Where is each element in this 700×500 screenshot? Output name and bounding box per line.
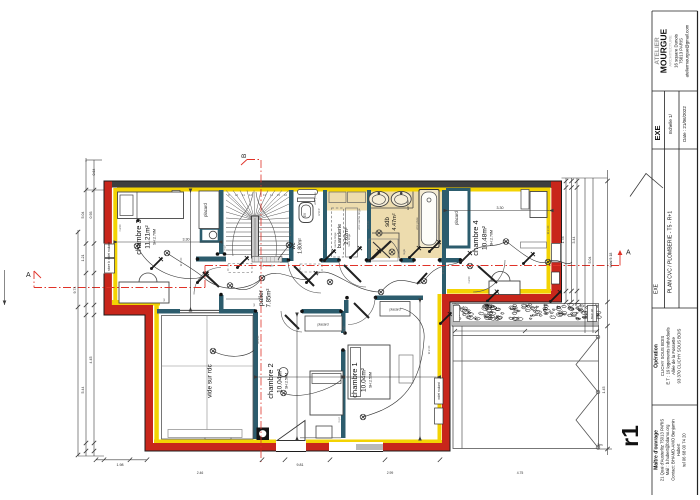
svg-text:sdb: sdb <box>385 217 391 227</box>
svg-text:1.45: 1.45 <box>602 387 606 394</box>
svg-text:0.93: 0.93 <box>89 212 93 219</box>
svg-text:1.80m²: 1.80m² <box>298 238 304 254</box>
svg-text:ateliermourgue@gmail.com: ateliermourgue@gmail.com <box>685 24 690 77</box>
svg-text:vide sur rdc: vide sur rdc <box>207 363 214 397</box>
svg-text:Echelle 1/: Echelle 1/ <box>668 113 673 134</box>
svg-text:fd:2.30: fd:2.30 <box>179 257 183 266</box>
svg-text:fd:2.30: fd:2.30 <box>427 345 431 354</box>
svg-text:fd:2.30: fd:2.30 <box>288 227 292 236</box>
svg-text:rec: rec <box>252 302 256 306</box>
svg-text:9.74: 9.74 <box>73 287 77 294</box>
svg-text:2.46: 2.46 <box>197 471 204 475</box>
svg-text:2.62m²: 2.62m² <box>344 227 350 244</box>
svg-text:1.21: 1.21 <box>81 255 85 262</box>
svg-text:HSFP: HSFP <box>317 208 321 216</box>
svg-text:1.98: 1.98 <box>117 463 124 467</box>
svg-text:rs pl: rs pl <box>337 417 341 423</box>
svg-text:rec240: rec240 <box>256 335 260 344</box>
svg-text:chambre 3: chambre 3 <box>134 219 143 254</box>
svg-text:10.04m²: 10.04m² <box>361 367 368 392</box>
svg-text:CLICHY SOUS BOIS: CLICHY SOUS BOIS <box>660 336 665 377</box>
svg-text:vmc pluie: vmc pluie <box>415 217 419 230</box>
svg-text:1.78: 1.78 <box>561 237 565 244</box>
svg-text:placard: placard <box>317 323 328 327</box>
svg-text:B: B <box>241 154 248 158</box>
svg-text:16: 16 <box>284 193 288 197</box>
svg-text:SH:2.50M: SH:2.50M <box>285 373 289 389</box>
svg-text:fd:2.30: fd:2.30 <box>546 225 550 234</box>
svg-text:10.48m²: 10.48m² <box>482 225 489 250</box>
svg-text:13: 13 <box>263 193 267 197</box>
svg-text:placard: placard <box>203 202 208 216</box>
svg-text:3.30: 3.30 <box>183 238 190 242</box>
svg-text:93 370 CLICHY SOUS BOIS: 93 370 CLICHY SOUS BOIS <box>677 328 682 383</box>
svg-text:4.75: 4.75 <box>517 471 524 475</box>
svg-text:5.04: 5.04 <box>588 257 592 264</box>
svg-text:11.21m²: 11.21m² <box>145 224 152 248</box>
svg-text:2.99: 2.99 <box>387 471 394 475</box>
svg-text:A: A <box>626 250 631 257</box>
svg-text:chambre 2: chambre 2 <box>266 363 275 398</box>
svg-text:placard: placard <box>389 308 400 312</box>
svg-text:total 9.18: total 9.18 <box>609 253 613 268</box>
svg-text:3.44: 3.44 <box>572 237 576 244</box>
svg-text:21 Quai d'Austerlitz 75013 PAR: 21 Quai d'Austerlitz 75013 PARIS <box>660 419 665 482</box>
svg-text:PLAN CVC / PLOMBERIE - T5 - R+: PLAN CVC / PLOMBERIE - T5 - R+1 <box>668 211 674 294</box>
svg-text:Contact: BHAMD-AMO Benjamin: Contact: BHAMD-AMO Benjamin <box>671 419 676 481</box>
svg-text:10: 10 <box>235 193 239 197</box>
svg-text:ARCHITECTURE: ARCHITECTURE <box>668 35 673 67</box>
svg-text:chambre 1: chambre 1 <box>350 362 359 397</box>
svg-text:12: 12 <box>249 193 253 197</box>
svg-text:fd2.30: fd2.30 <box>342 326 346 334</box>
svg-text:11: 11 <box>242 193 245 197</box>
svg-text:4.47m²: 4.47m² <box>392 213 398 230</box>
svg-text:vmc pluie: vmc pluie <box>313 192 317 205</box>
svg-text:Allée de la Fossette: Allée de la Fossette <box>671 337 676 375</box>
svg-text:rec: rec <box>162 297 166 301</box>
svg-text:BAC 40: BAC 40 <box>590 309 594 320</box>
svg-text:3.30: 3.30 <box>497 206 504 210</box>
svg-text:10.04m²: 10.04m² <box>277 368 284 393</box>
svg-text:r1: r1 <box>617 425 643 447</box>
svg-text:SH:2.70M: SH:2.70M <box>490 230 494 246</box>
svg-text:EC 75L: EC 75L <box>406 200 410 210</box>
svg-text:5.44: 5.44 <box>81 387 85 394</box>
svg-text:SH:2.70M: SH:2.70M <box>153 229 157 245</box>
svg-text:volet roulant: volet roulant <box>107 242 111 259</box>
svg-text:5.04: 5.04 <box>81 212 85 219</box>
svg-text:chambre 4: chambre 4 <box>471 220 480 255</box>
svg-text:4.45: 4.45 <box>89 357 93 364</box>
svg-text:vmc seche linge: vmc seche linge <box>357 208 361 230</box>
svg-text:buanderie: buanderie <box>337 224 343 248</box>
svg-text:volet roulant: volet roulant <box>437 382 441 399</box>
svg-text:fd:2.30: fd:2.30 <box>441 265 445 274</box>
svg-text:rs240: rs240 <box>118 224 122 231</box>
svg-text:Hubert: Hubert <box>676 443 681 456</box>
svg-text:15: 15 <box>277 193 281 197</box>
svg-text:5m: 5m <box>598 443 603 447</box>
svg-text:rs pl: rs pl <box>223 245 227 251</box>
svg-text:store b: store b <box>107 261 111 271</box>
svg-text:wc: wc <box>291 242 297 250</box>
svg-text:tel 06 68 00 74 20: tel 06 68 00 74 20 <box>682 433 687 467</box>
svg-text:Date : 21/06/2022: Date : 21/06/2022 <box>682 106 687 142</box>
svg-text:Mail : b.hubert@bdamo.org: Mail : b.hubert@bdamo.org <box>665 424 670 475</box>
svg-text:rec240: rec240 <box>366 220 370 229</box>
svg-text:rs240: rs240 <box>467 276 471 283</box>
svg-text:EXE: EXE <box>654 283 660 294</box>
svg-text:placard: placard <box>454 210 459 224</box>
svg-text:vmc: vmc <box>437 219 441 225</box>
svg-text:E.T : 19 logements individuels: E.T : 19 logements individuels <box>666 327 671 384</box>
svg-text:rec2.50: rec2.50 <box>322 240 326 250</box>
svg-text:9.81: 9.81 <box>297 463 304 467</box>
svg-text:SH:2.50M: SH:2.50M <box>369 372 373 388</box>
svg-text:A: A <box>26 272 31 279</box>
svg-text:7.85m²: 7.85m² <box>267 289 273 308</box>
svg-text:EXE: EXE <box>653 125 662 140</box>
svg-text:14: 14 <box>270 193 274 197</box>
svg-text:palier: palier <box>258 289 265 306</box>
svg-text:Opération: Opération <box>654 344 660 368</box>
svg-text:0.64: 0.64 <box>92 169 96 176</box>
svg-text:75013 PARIS: 75013 PARIS <box>679 38 684 64</box>
svg-text:regle: regle <box>402 248 406 255</box>
